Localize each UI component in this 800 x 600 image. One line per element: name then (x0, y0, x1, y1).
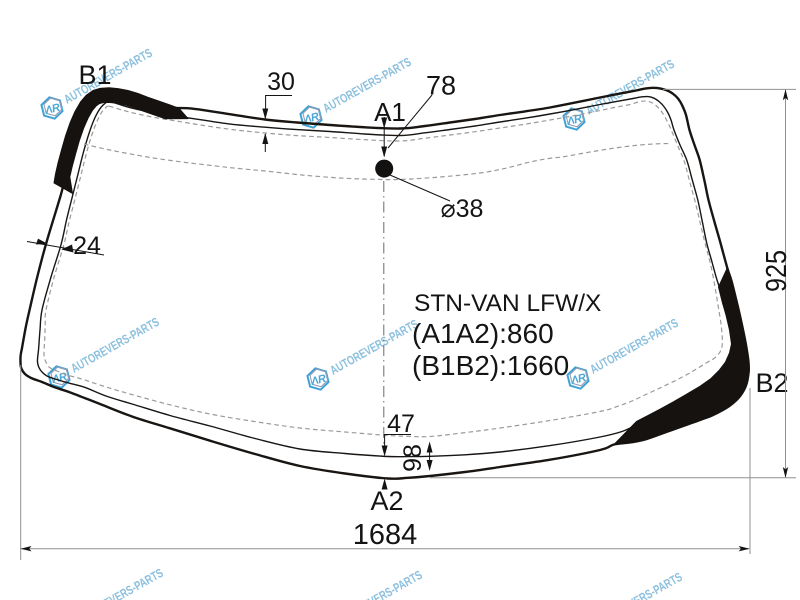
svg-text:24: 24 (73, 232, 101, 260)
svg-text:30: 30 (267, 68, 295, 96)
svg-text:⌀38: ⌀38 (441, 195, 484, 223)
svg-text:(A1A2):860: (A1A2):860 (412, 318, 554, 349)
svg-text:78: 78 (426, 71, 456, 101)
svg-text:1684: 1684 (353, 519, 418, 551)
svg-text:(B1B2):1660: (B1B2):1660 (412, 350, 569, 381)
svg-text:47: 47 (387, 410, 415, 438)
svg-text:STN-VAN LFW/X: STN-VAN LFW/X (414, 290, 601, 317)
svg-text:A2: A2 (370, 486, 403, 516)
svg-text:A1: A1 (374, 97, 406, 127)
svg-text:B1: B1 (78, 60, 111, 90)
svg-text:925: 925 (761, 250, 793, 292)
svg-text:B2: B2 (755, 368, 788, 398)
svg-text:98: 98 (399, 444, 427, 472)
